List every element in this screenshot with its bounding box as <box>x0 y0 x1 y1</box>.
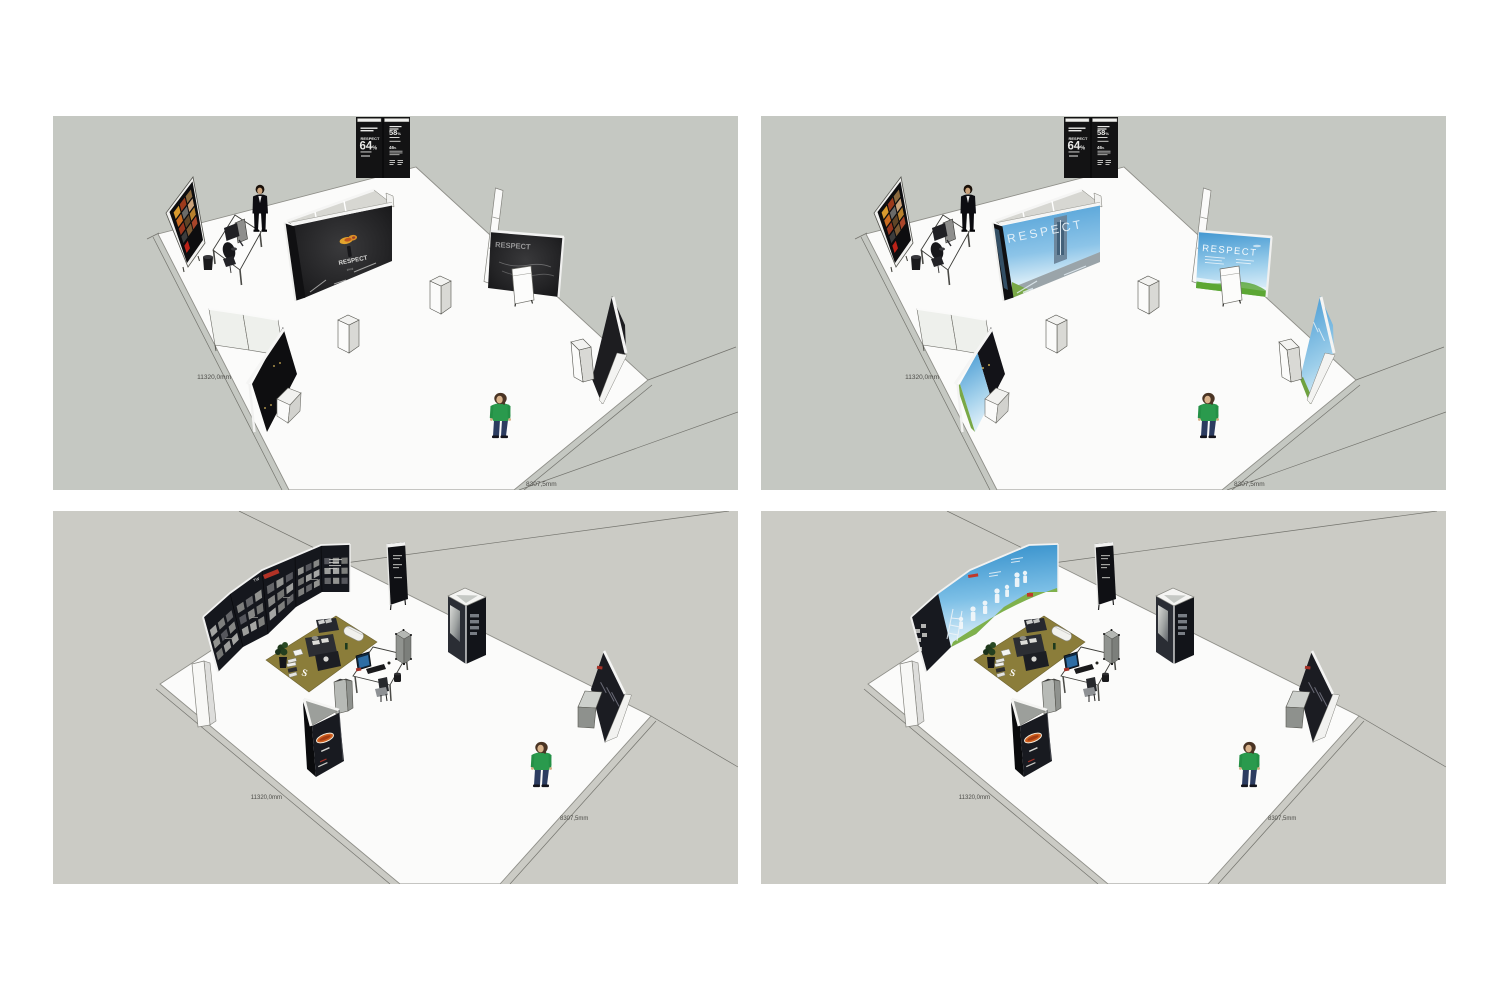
svg-text:8307,5mm: 8307,5mm <box>1268 816 1296 822</box>
svg-text:11320,0mm: 11320,0mm <box>251 795 282 801</box>
svg-text:8307,5mm: 8307,5mm <box>1234 481 1265 488</box>
svg-text:8307,5mm: 8307,5mm <box>526 481 557 488</box>
svg-text:11320,0mm: 11320,0mm <box>905 374 939 381</box>
svg-text:8307,5mm: 8307,5mm <box>560 816 588 822</box>
svg-text:11320,0mm: 11320,0mm <box>197 374 231 381</box>
svg-text:11320,0mm: 11320,0mm <box>959 795 990 801</box>
